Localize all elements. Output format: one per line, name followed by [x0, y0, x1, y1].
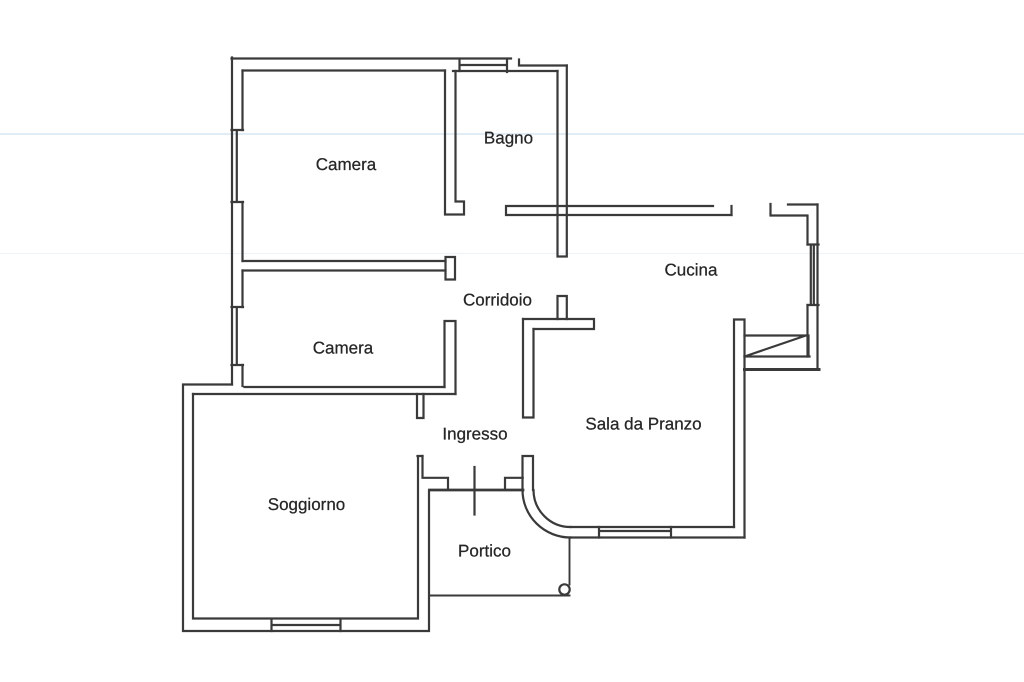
svg-text:Bagno: Bagno	[484, 129, 533, 148]
svg-text:Camera: Camera	[313, 339, 374, 358]
svg-text:Sala da Pranzo: Sala da Pranzo	[585, 415, 701, 434]
svg-text:Soggiorno: Soggiorno	[268, 495, 346, 514]
svg-text:Cucina: Cucina	[665, 261, 718, 280]
svg-text:Ingresso: Ingresso	[442, 425, 507, 444]
svg-text:Camera: Camera	[316, 155, 377, 174]
svg-text:Portico: Portico	[458, 542, 511, 561]
svg-text:Corridoio: Corridoio	[463, 291, 532, 310]
